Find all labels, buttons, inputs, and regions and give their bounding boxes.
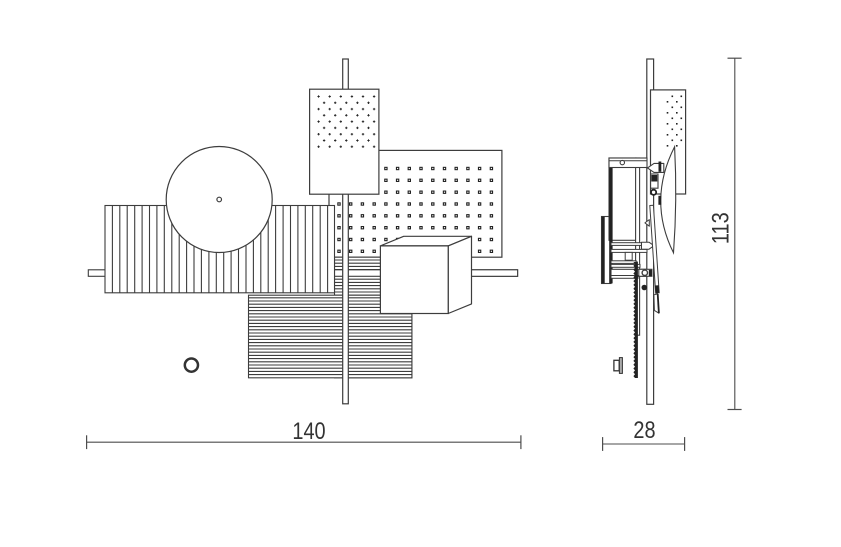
svg-text:140: 140 bbox=[292, 417, 325, 444]
svg-text:113: 113 bbox=[707, 212, 734, 244]
svg-text:28: 28 bbox=[633, 416, 655, 443]
